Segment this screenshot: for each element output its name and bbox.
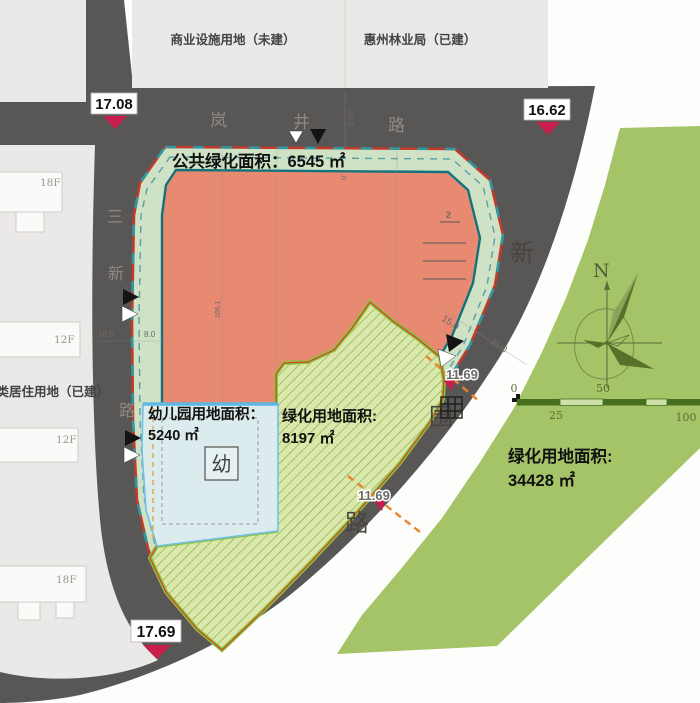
- chainage-label-a: 11.69: [446, 367, 478, 382]
- dim-note: 2: [446, 210, 451, 220]
- road-name-left-char: 新: [108, 264, 124, 283]
- road-name-right-char: 新: [510, 239, 534, 267]
- building-label: 12F: [54, 334, 75, 346]
- public-green-area-label: 公共绿化面积：6545 ㎡: [172, 151, 346, 171]
- road-name-top-char: 岚: [210, 111, 227, 131]
- svg-text:17.08: 17.08: [95, 96, 133, 113]
- north-label: N: [593, 260, 610, 282]
- residential-parcel-label: 二类居住用地（已建）: [0, 384, 109, 399]
- plan-canvas: 18F 12F 12F 18F 二类居住用地（已建） 商业设施用地（未建） 惠州…: [0, 0, 700, 703]
- kindergarten-area-label-value: 5240 ㎡: [148, 426, 199, 444]
- svg-text:16.62: 16.62: [528, 102, 566, 119]
- scale-tick-100: 100: [676, 411, 697, 424]
- forestry-parcel-label: 惠州林业局（已建）: [364, 32, 477, 47]
- road-name-left-char: 路: [119, 401, 135, 420]
- road-name-right-char: 路: [345, 509, 369, 537]
- commercial-parcel-label: 商业设施用地（未建）: [170, 32, 295, 47]
- building-label: 18F: [40, 177, 61, 189]
- road-name-top-char: 井: [293, 113, 310, 133]
- dim-interior: 106.1: [215, 300, 222, 318]
- road-name-top-char: 路: [388, 116, 405, 136]
- scale-tick-0: 0: [511, 382, 518, 395]
- scale-tick-50: 50: [596, 382, 610, 395]
- kindergarten-area-label-title: 幼儿园用地面积：: [148, 405, 264, 423]
- dim-left-offset-b: 8.0: [144, 330, 156, 339]
- site-green-area-label-title: 绿化用地面积:: [282, 407, 377, 425]
- east-green-area-label-title: 绿化用地面积:: [508, 446, 613, 466]
- building-label: 12F: [56, 434, 77, 446]
- site-green-area-label-value: 8197 ㎡: [282, 429, 335, 447]
- kindergarten-symbol: 幼: [212, 452, 232, 476]
- east-green-area-label-value: 34428 ㎡: [508, 470, 575, 490]
- scale-tick-25: 25: [549, 409, 563, 422]
- dim-band-width: 1.0: [339, 170, 346, 180]
- dim-road-width: 26.0: [346, 110, 355, 126]
- building-label: 18F: [56, 574, 77, 586]
- parcel-northwest: [0, 0, 86, 102]
- site-plan-map: 18F 12F 12F 18F 二类居住用地（已建） 商业设施用地（未建） 惠州…: [0, 0, 700, 703]
- chainage-label-b: 11.69: [358, 488, 390, 503]
- dim-left-offset-a: 18.0: [98, 330, 114, 339]
- svg-text:17.69: 17.69: [137, 624, 176, 641]
- road-name-left-char: 三: [107, 207, 123, 226]
